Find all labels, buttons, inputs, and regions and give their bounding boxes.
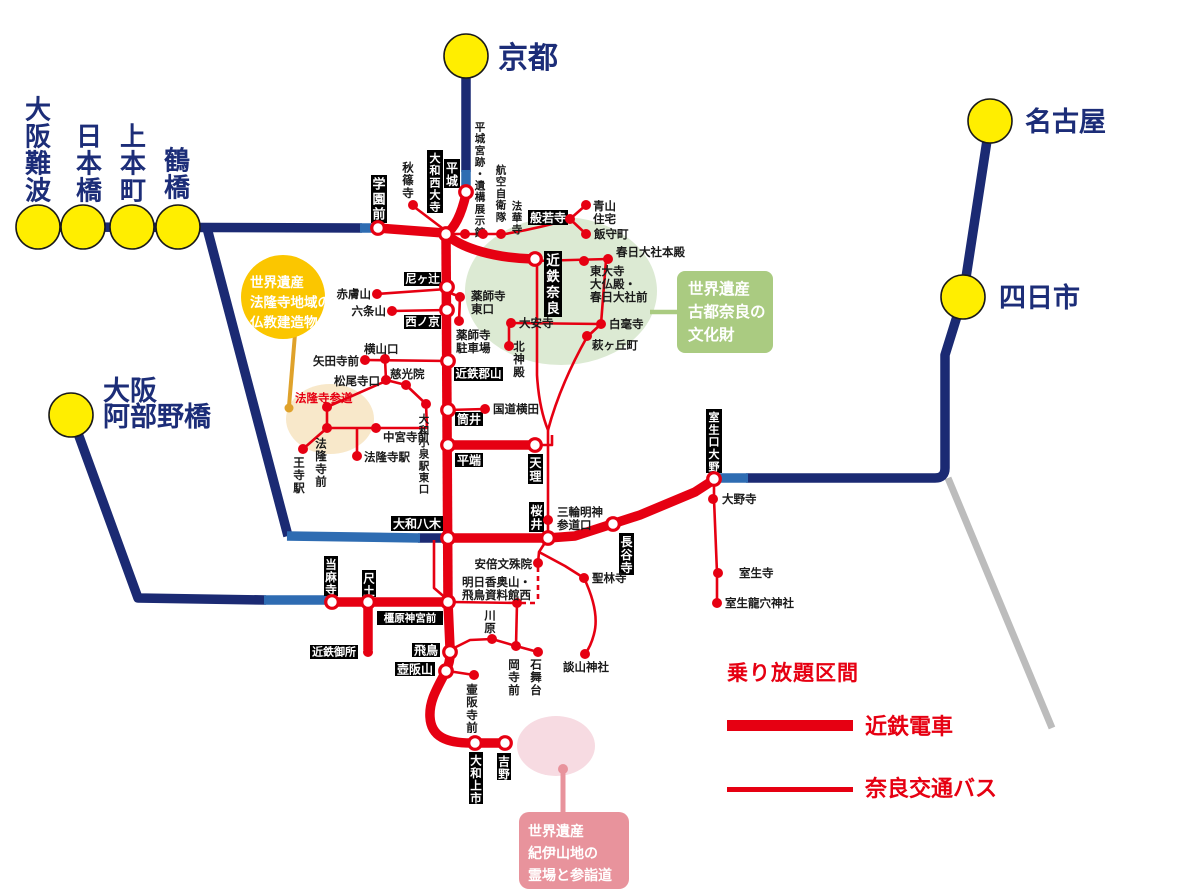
bus-akahadayama [377, 289, 447, 294]
legend-bus-label: 奈良交通バス [865, 771, 997, 803]
stop-yamatokoizumi-higashiguchi-label: 大和小泉駅東口 [418, 412, 430, 495]
station-yamato-kamiichi-marker [469, 737, 482, 750]
stop-chuguji-mae-marker [371, 423, 381, 433]
terminal-uehommachi-marker [110, 205, 154, 249]
terminal-tsuruhashi-marker [156, 205, 200, 249]
stop-oji-eki: 王寺駅 [292, 444, 308, 495]
stop-horyuji-mae-label: 法隆寺前 [315, 436, 327, 488]
station-gakuemmae: 学園前 [371, 175, 387, 234]
stop-matsuodera-guchi-label: 松尾寺口 [334, 374, 380, 388]
station-taimadera-label: 当麻寺 [324, 557, 337, 596]
bus-rokujoyama [392, 310, 447, 311]
stop-rokujoyama-label: 六条山 [352, 304, 387, 318]
stop-tsubosakadera-mae-marker [469, 670, 479, 680]
stop-muro-ryuketsu-jinja-marker [712, 598, 722, 608]
stop-tsubosakadera-mae-label: 壷阪寺前 [466, 682, 478, 734]
terminal-nippombashi-label: 日本橋 [76, 121, 103, 205]
stop-hagigaokacho-label: 萩ヶ丘町 [591, 338, 638, 352]
stop-aoyama-jutaku-label-line-1: 住宅 [593, 212, 616, 226]
station-kintetsu-koriyama-marker [442, 355, 455, 368]
station-yoshino-marker [499, 737, 512, 750]
stop-akishinodera-label: 秋篠寺 [402, 160, 414, 199]
stop-horyuji-eki: 法隆寺駅 [352, 450, 410, 464]
legend: 乗り放題区間 近鉄電車 奈良交通バス [727, 657, 997, 803]
abeno-line-navy [72, 417, 266, 600]
stop-jikoin: 慈光院 [390, 367, 425, 390]
station-asuka-marker [444, 646, 457, 659]
station-muroguchi-ono-label: 室生口大野 [709, 410, 720, 474]
stop-asuka-okuyama-shiryokan-label-line-1: 飛鳥資料館西 [461, 588, 531, 602]
terminal-nagoya: 名古屋 [968, 99, 1106, 143]
stop-asuka-okuyama-shiryokan-label-line-0: 明日香奥山・ [462, 575, 531, 589]
terminal-uehommachi: 上本町 [110, 121, 154, 249]
terminal-osaka-namba-label: 大阪難波 [25, 94, 52, 205]
stop-akishinodera: 秋篠寺 [402, 160, 418, 210]
station-shakudo-marker [362, 596, 375, 609]
stop-kitashinden-label: 北神殿 [512, 339, 525, 378]
station-kintetsu-nara-label: 近鉄奈良 [545, 252, 560, 316]
stop-yakushiji-higashiguchi-label-line-1: 東口 [471, 302, 494, 316]
terminal-tsuruhashi-label: 鶴橋 [164, 145, 191, 202]
legend-row-train: 近鉄電車 [727, 709, 997, 741]
terminal-osaka-abenobashi-marker [49, 393, 93, 437]
stop-yakushiji-higashiguchi-marker [455, 292, 465, 302]
stop-okadera-mae-label: 岡寺前 [508, 658, 520, 696]
station-gakuemmae-label: 学園前 [372, 177, 385, 222]
station-muroguchi-ono-marker [708, 473, 721, 486]
station-amagatsuji-marker [441, 281, 454, 294]
stop-rokujoyama-marker [387, 306, 397, 316]
stop-yatadera-mae-label: 矢田寺前 [313, 354, 359, 368]
stop-aoyama-jutaku-marker [581, 200, 591, 210]
stop-horyuji-eki-label: 法隆寺駅 [364, 450, 410, 464]
stop-tsubosakadera-mae: 壷阪寺前 [466, 670, 479, 734]
stop-rokujoyama: 六条山 [352, 304, 398, 318]
bus-asuka-kawahara [452, 639, 492, 649]
stop-kitashinden: 北神殿 [504, 339, 525, 378]
stop-akishinodera-marker [408, 200, 418, 210]
station-tenri: 天理 [528, 439, 543, 484]
thin-red-line-swatch [727, 787, 853, 792]
legend-row-bus: 奈良交通バス [727, 771, 997, 803]
stop-horyuji-mae-marker [322, 423, 332, 433]
stop-koku-jieitai-marker [478, 229, 488, 239]
stop-horyuji-sando-label: 法隆寺参道 [295, 391, 353, 405]
stop-shorinji-label: 聖林寺 [592, 571, 627, 585]
station-hasedera: 長谷寺 [607, 518, 634, 576]
terminal-osaka-namba: 大阪難波 [16, 94, 60, 249]
stop-abemonjuin-marker [533, 558, 543, 568]
stop-todaiji-daibutsuden-label-line-1: 大仏殿・ [590, 277, 636, 291]
stop-byakugoji-label: 白毫寺 [609, 317, 644, 331]
stop-okadera-mae-marker [511, 641, 521, 651]
station-yoshino: 吉野 [497, 737, 511, 781]
kii-heritage-callout: 世界遺産紀伊山地の霊場と参詣道 [519, 764, 629, 889]
station-yamato-saidaiji-label: 大和西大寺 [430, 151, 441, 214]
stop-daianji-marker [506, 318, 516, 328]
stop-kokudo-yokota-label: 国道横田 [493, 402, 539, 416]
route-map-canvas: 世界遺産法隆寺地域の仏教建造物世界遺産古都奈良の文化財世界遺産紀伊山地の霊場と参… [0, 0, 1203, 893]
stop-heijokyuseki-tenjikan-label: 平城宮跡・遺構展示館 [474, 121, 486, 238]
station-tsutsui-marker [442, 404, 455, 417]
stop-todaiji-daibutsuden-marker [579, 256, 589, 266]
kii-heritage-callout-label-line-1: 紀伊山地の [528, 845, 598, 861]
terminal-osaka-abenobashi: 大阪阿部野橋 [49, 376, 212, 437]
terminal-yokkaichi-label: 四日市 [999, 282, 1080, 313]
stop-miwamyojin-sandoguchi-label-line-1: 参道口 [556, 518, 592, 532]
stop-ishibutai-marker [533, 647, 543, 657]
station-kintetsu-gose-marker [363, 647, 373, 657]
station-gakuemmae-marker [372, 222, 385, 235]
kii-heritage-callout-label-line-0: 世界遺産 [528, 823, 584, 839]
stop-abemonjuin: 安倍文殊院 [475, 557, 544, 571]
terminal-nagoya-marker [968, 99, 1012, 143]
stop-shorinji-marker [579, 573, 589, 583]
station-nishinokyo-marker [441, 304, 454, 317]
station-tsubosakayama-marker [440, 665, 453, 678]
terminal-yokkaichi-marker [941, 275, 985, 319]
station-taimadera: 当麻寺 [324, 556, 338, 608]
stop-okadera-mae: 岡寺前 [508, 641, 521, 697]
stop-yakushiji-chushajo-label-line-1: 駐車場 [456, 341, 491, 355]
terminal-nagoya-label: 名古屋 [1025, 106, 1106, 137]
stop-kasugataisha-honden-label: 春日大社本殿 [616, 245, 685, 259]
kintetsu-nara-route-map: 世界遺産法隆寺地域の仏教建造物世界遺産古都奈良の文化財世界遺産紀伊山地の霊場と参… [0, 0, 1203, 893]
stop-koku-jieitai-label: 航空自衛隊 [495, 163, 507, 223]
station-kintetsu-koriyama-label: 近鉄郡山 [456, 367, 502, 381]
station-sakurai-marker [542, 532, 555, 545]
station-tenri-marker [529, 439, 542, 452]
thick-red-line-swatch [727, 720, 853, 731]
bus-kashihara-shiryokan [452, 602, 517, 603]
stop-oji-eki-marker [298, 444, 308, 454]
station-tsubosakayama-label: 壺阪山 [397, 662, 433, 677]
stop-muro-ryuketsu-jinja-label: 室生龍穴神社 [725, 596, 794, 610]
station-amagatsuji-label: 尼ヶ辻 [405, 272, 440, 286]
station-hirahata-marker [442, 439, 455, 452]
terminal-nippombashi: 日本橋 [61, 121, 105, 249]
station-heijo-marker [460, 186, 473, 199]
station-muroguchi-ono: 室生口大野 [706, 409, 722, 485]
terminal-nippombashi-marker [61, 205, 105, 249]
stop-muroji-marker [713, 568, 723, 578]
terminal-kyoto-label: 京都 [498, 41, 558, 75]
kii-heritage-callout-label-line-2: 霊場と参詣道 [528, 867, 612, 883]
terminal-kyoto-marker [444, 34, 488, 78]
legend-title: 乗り放題区間 [727, 657, 997, 687]
station-hirahata-label: 平端 [457, 453, 481, 468]
stop-abemonjuin-label: 安倍文殊院 [475, 557, 533, 571]
stop-heijokyuseki-tenjikan-marker [460, 229, 470, 239]
stop-muro-ryuketsu-jinja: 室生龍穴神社 [712, 596, 794, 610]
horyuji-heritage-callout-label-line-2: 仏教建造物 [250, 314, 318, 330]
kii-heritage-callout-stem-dot [558, 764, 568, 774]
bus-monjuin-shorinji [539, 552, 584, 578]
stop-miwamyojin-sandoguchi-label-line-0: 三輪明神 [557, 505, 603, 519]
station-hannyaji: 般若寺 [528, 210, 575, 225]
stop-kawahara-label: 川原 [483, 609, 496, 635]
stop-horyuji-eki-marker [352, 451, 362, 461]
stop-miwamyojin-sandoguchi-marker [543, 515, 553, 525]
terminal-uehommachi-label: 上本町 [120, 121, 146, 205]
station-shakudo: 尺土 [362, 570, 376, 608]
stop-yamatokoizumi-higashiguchi-marker [421, 399, 431, 409]
station-yamato-yagi-marker [442, 532, 455, 545]
bus-yatadera-koriyama [365, 360, 448, 361]
terminal-osaka-abenobashi-label-line-1: 阿部野橋 [103, 401, 212, 432]
stop-kokudo-yokota-marker [480, 404, 490, 414]
stop-yatadera-mae-marker [360, 355, 370, 365]
station-yamato-saidaiji-marker [440, 228, 453, 241]
stop-onodera-marker [708, 494, 718, 504]
station-hasedera-label: 長谷寺 [620, 534, 633, 575]
stop-daianji-label: 大安寺 [519, 316, 554, 330]
terminal-yokkaichi: 四日市 [941, 275, 1080, 319]
stop-ishibutai-label: 石舞台 [529, 658, 542, 696]
stop-yakushiji-higashiguchi-label-line-0: 薬師寺 [470, 289, 506, 303]
stop-yatadera-mae: 矢田寺前 [313, 354, 370, 368]
station-sakurai-label: 桜井 [530, 503, 542, 532]
station-hannyaji-label: 般若寺 [530, 210, 566, 225]
station-hannyaji-marker [565, 214, 575, 224]
stop-iimoricho-marker [581, 229, 591, 239]
terminal-tsuruhashi: 鶴橋 [156, 145, 200, 249]
stop-byakugoji-marker [596, 319, 606, 329]
stop-oji-eki-label: 王寺駅 [292, 456, 305, 494]
stop-hokkeji-marker [496, 229, 506, 239]
stop-todaiji-daibutsuden-label-line-0: 東大寺 [590, 264, 625, 278]
station-kashiharajingu-mae-marker [442, 596, 455, 609]
station-tsubosakayama: 壺阪山 [395, 662, 452, 678]
station-yamato-kamiichi-label: 大和上市 [470, 753, 482, 805]
station-asuka: 飛鳥 [412, 643, 456, 659]
stop-hokkeji-label: 法華寺 [512, 199, 523, 235]
stop-jikoin-marker [401, 380, 411, 390]
station-yamato-yagi-label: 大和八木 [393, 516, 442, 531]
station-kintetsu-gose-label: 近鉄御所 [312, 645, 356, 659]
terminal-kyoto: 京都 [444, 34, 558, 78]
station-shakudo-label: 尺土 [363, 572, 375, 598]
stop-onodera-label: 大野寺 [722, 492, 757, 506]
legend-train-label: 近鉄電車 [865, 709, 953, 741]
tsuruhashi-yagi-mid [287, 536, 420, 538]
stop-aoyama-jutaku-label-line-0: 青山 [593, 199, 616, 213]
station-taimadera-marker [326, 596, 339, 609]
station-hasedera-marker [607, 518, 620, 531]
station-yamato-kamiichi: 大和上市 [469, 737, 483, 805]
stop-kawahara-marker [487, 634, 497, 644]
stop-kasugataisha-honden-marker [603, 254, 613, 264]
stop-todaiji-daibutsuden-label-line-2: 春日大社前 [590, 290, 648, 304]
stop-tanzan-jinja-label: 談山神社 [563, 660, 609, 674]
stop-tanzan-jinja: 談山神社 [563, 649, 609, 674]
stop-jikoin-label: 慈光院 [390, 367, 425, 381]
nara-heritage-callout-label-line-1: 古都奈良の [688, 302, 766, 321]
station-kintetsu-nara-marker [529, 253, 542, 266]
stop-kokudo-yokota: 国道横田 [480, 402, 539, 416]
stop-yamatokoizumi-higashiguchi: 大和小泉駅東口 [418, 399, 431, 496]
nara-heritage-callout-label-line-0: 世界遺産 [688, 279, 750, 298]
stop-yakushiji-chushajo-marker [454, 316, 464, 326]
stop-akahadayama: 赤膚山 [337, 287, 383, 301]
stop-ishibutai: 石舞台 [529, 647, 543, 697]
nara-heritage-callout-label-line-2: 文化財 [688, 325, 735, 344]
station-nishinokyo-label: 西ノ京 [405, 315, 440, 329]
station-heijo-label: 平城 [446, 161, 458, 188]
bus-shiryokan-okadera [516, 603, 517, 646]
stop-iimoricho-label: 飯守町 [593, 227, 629, 241]
stop-muroji: 室生寺 [713, 566, 774, 580]
stop-yokoyamaguchi-label: 横山口 [364, 342, 399, 356]
station-asuka-label: 飛鳥 [413, 643, 438, 658]
stop-akahadayama-marker [372, 289, 382, 299]
horyuji-heritage-callout-stem-dot [285, 404, 294, 413]
rail-gakuemmae-saidaiji [378, 228, 444, 233]
station-tenri-label: 天理 [529, 456, 542, 484]
kii-heritage-zone [517, 716, 595, 776]
station-tsutsui-label: 筒井 [457, 412, 481, 427]
terminal-osaka-namba-marker [16, 205, 60, 249]
stop-muroji-label: 室生寺 [739, 566, 774, 580]
station-yoshino-label: 吉野 [498, 754, 510, 781]
stop-matsuodera-guchi: 松尾寺口 [334, 374, 391, 388]
stop-akahadayama-label: 赤膚山 [337, 287, 372, 301]
stop-hagigaokacho-marker [582, 331, 592, 341]
station-kashiharajingu-mae-label: 橿原神宮前 [384, 612, 437, 625]
nara-heritage-callout: 世界遺産古都奈良の文化財 [650, 271, 773, 353]
bus-shorinji-tanzan [584, 578, 596, 654]
horyuji-heritage-callout-label-line-0: 世界遺産 [250, 274, 304, 290]
horyuji-heritage-callout-label-line-1: 法隆寺地域の [250, 294, 331, 310]
stop-tanzan-jinja-marker [580, 649, 590, 659]
stop-yakushiji-chushajo-label-line-0: 薬師寺 [455, 328, 491, 342]
